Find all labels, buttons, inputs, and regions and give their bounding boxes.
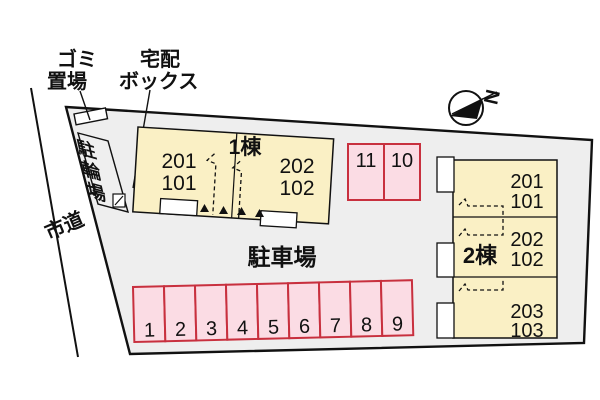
delivery-box-label-line2: ボックス xyxy=(119,70,198,93)
road-label: 市道 xyxy=(41,207,87,245)
parking-stall-2-label: 2 xyxy=(175,319,187,341)
site-plan: 市道 ゴミ 置場 宅配 ボックス 駐輪場 1棟 201 101 202 102 … xyxy=(0,0,600,400)
building-2-unit1-upper: 201 xyxy=(510,171,543,193)
parking-stall-10-label: 10 xyxy=(391,150,413,172)
building-2-unit3-lower: 103 xyxy=(510,320,543,342)
north-arrow: N xyxy=(449,87,503,125)
building-1-unit1-upper: 201 xyxy=(161,150,196,173)
parking-stall-11-label: 11 xyxy=(356,150,377,172)
building-2-entrance-middle xyxy=(437,243,454,277)
parking-stall-8-label: 8 xyxy=(361,314,373,336)
building-2-name: 2棟 xyxy=(463,243,498,268)
parking-stall-4-label: 4 xyxy=(237,317,249,339)
building-2-entrance-bottom xyxy=(437,303,454,338)
parking-lot-label: 駐車場 xyxy=(248,244,317,270)
upper-parking-stalls: 11 10 xyxy=(348,144,420,200)
building-1-unit2-upper: 202 xyxy=(279,155,314,178)
garbage-label-line1: ゴミ xyxy=(57,47,97,71)
building-1-entrance-right xyxy=(260,211,297,228)
parking-stall-9-label: 9 xyxy=(392,313,404,335)
parking-stall-3-label: 3 xyxy=(206,318,218,340)
site-plan-canvas: 市道 ゴミ 置場 宅配 ボックス 駐輪場 1棟 201 101 202 102 … xyxy=(0,0,600,400)
building-2-unit1-lower: 101 xyxy=(510,191,543,213)
building-1-name: 1棟 xyxy=(229,135,263,159)
parking-stall-row: 1 2 3 4 5 6 7 8 9 xyxy=(133,280,413,342)
building-2-unit2-lower: 102 xyxy=(510,249,543,271)
road-label-group: 市道 xyxy=(41,207,87,245)
building-2-unit2-upper: 202 xyxy=(510,229,543,251)
building-1-unit1-lower: 101 xyxy=(161,172,196,195)
parking-stall-6-label: 6 xyxy=(299,316,311,338)
parking-stall-5-label: 5 xyxy=(268,316,280,338)
parking-stall-1-label: 1 xyxy=(144,319,156,341)
building-1-unit2-lower: 102 xyxy=(279,177,314,200)
delivery-box-label-line1: 宅配 xyxy=(140,47,180,71)
building-1-entrance-left xyxy=(160,199,198,216)
garbage-label-line2: 置場 xyxy=(47,70,87,93)
parking-stall-7-label: 7 xyxy=(330,315,342,337)
building-2-entrance-top xyxy=(437,157,454,192)
